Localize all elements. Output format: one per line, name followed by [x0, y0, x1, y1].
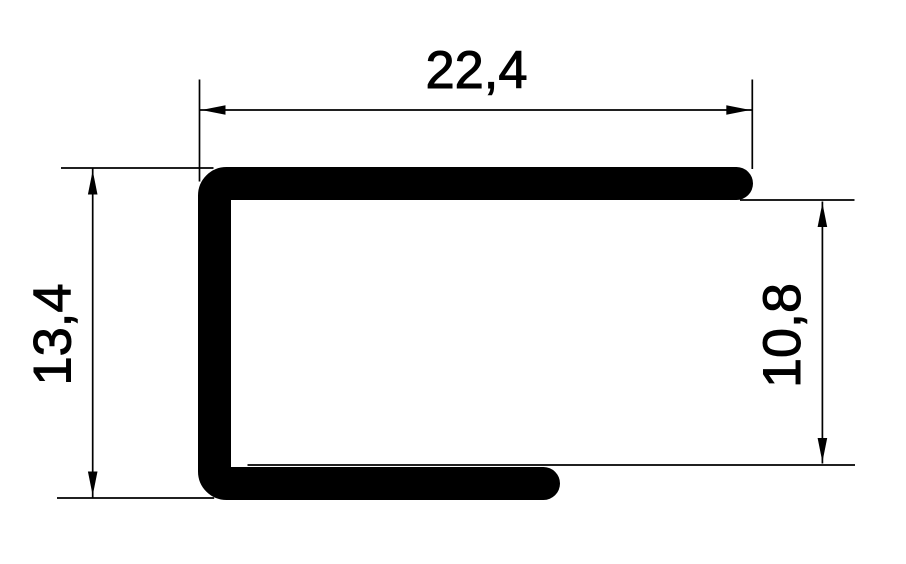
svg-text:13,4: 13,4 — [24, 284, 83, 386]
svg-text:10,8: 10,8 — [753, 283, 812, 388]
svg-text:22,4: 22,4 — [426, 41, 528, 100]
